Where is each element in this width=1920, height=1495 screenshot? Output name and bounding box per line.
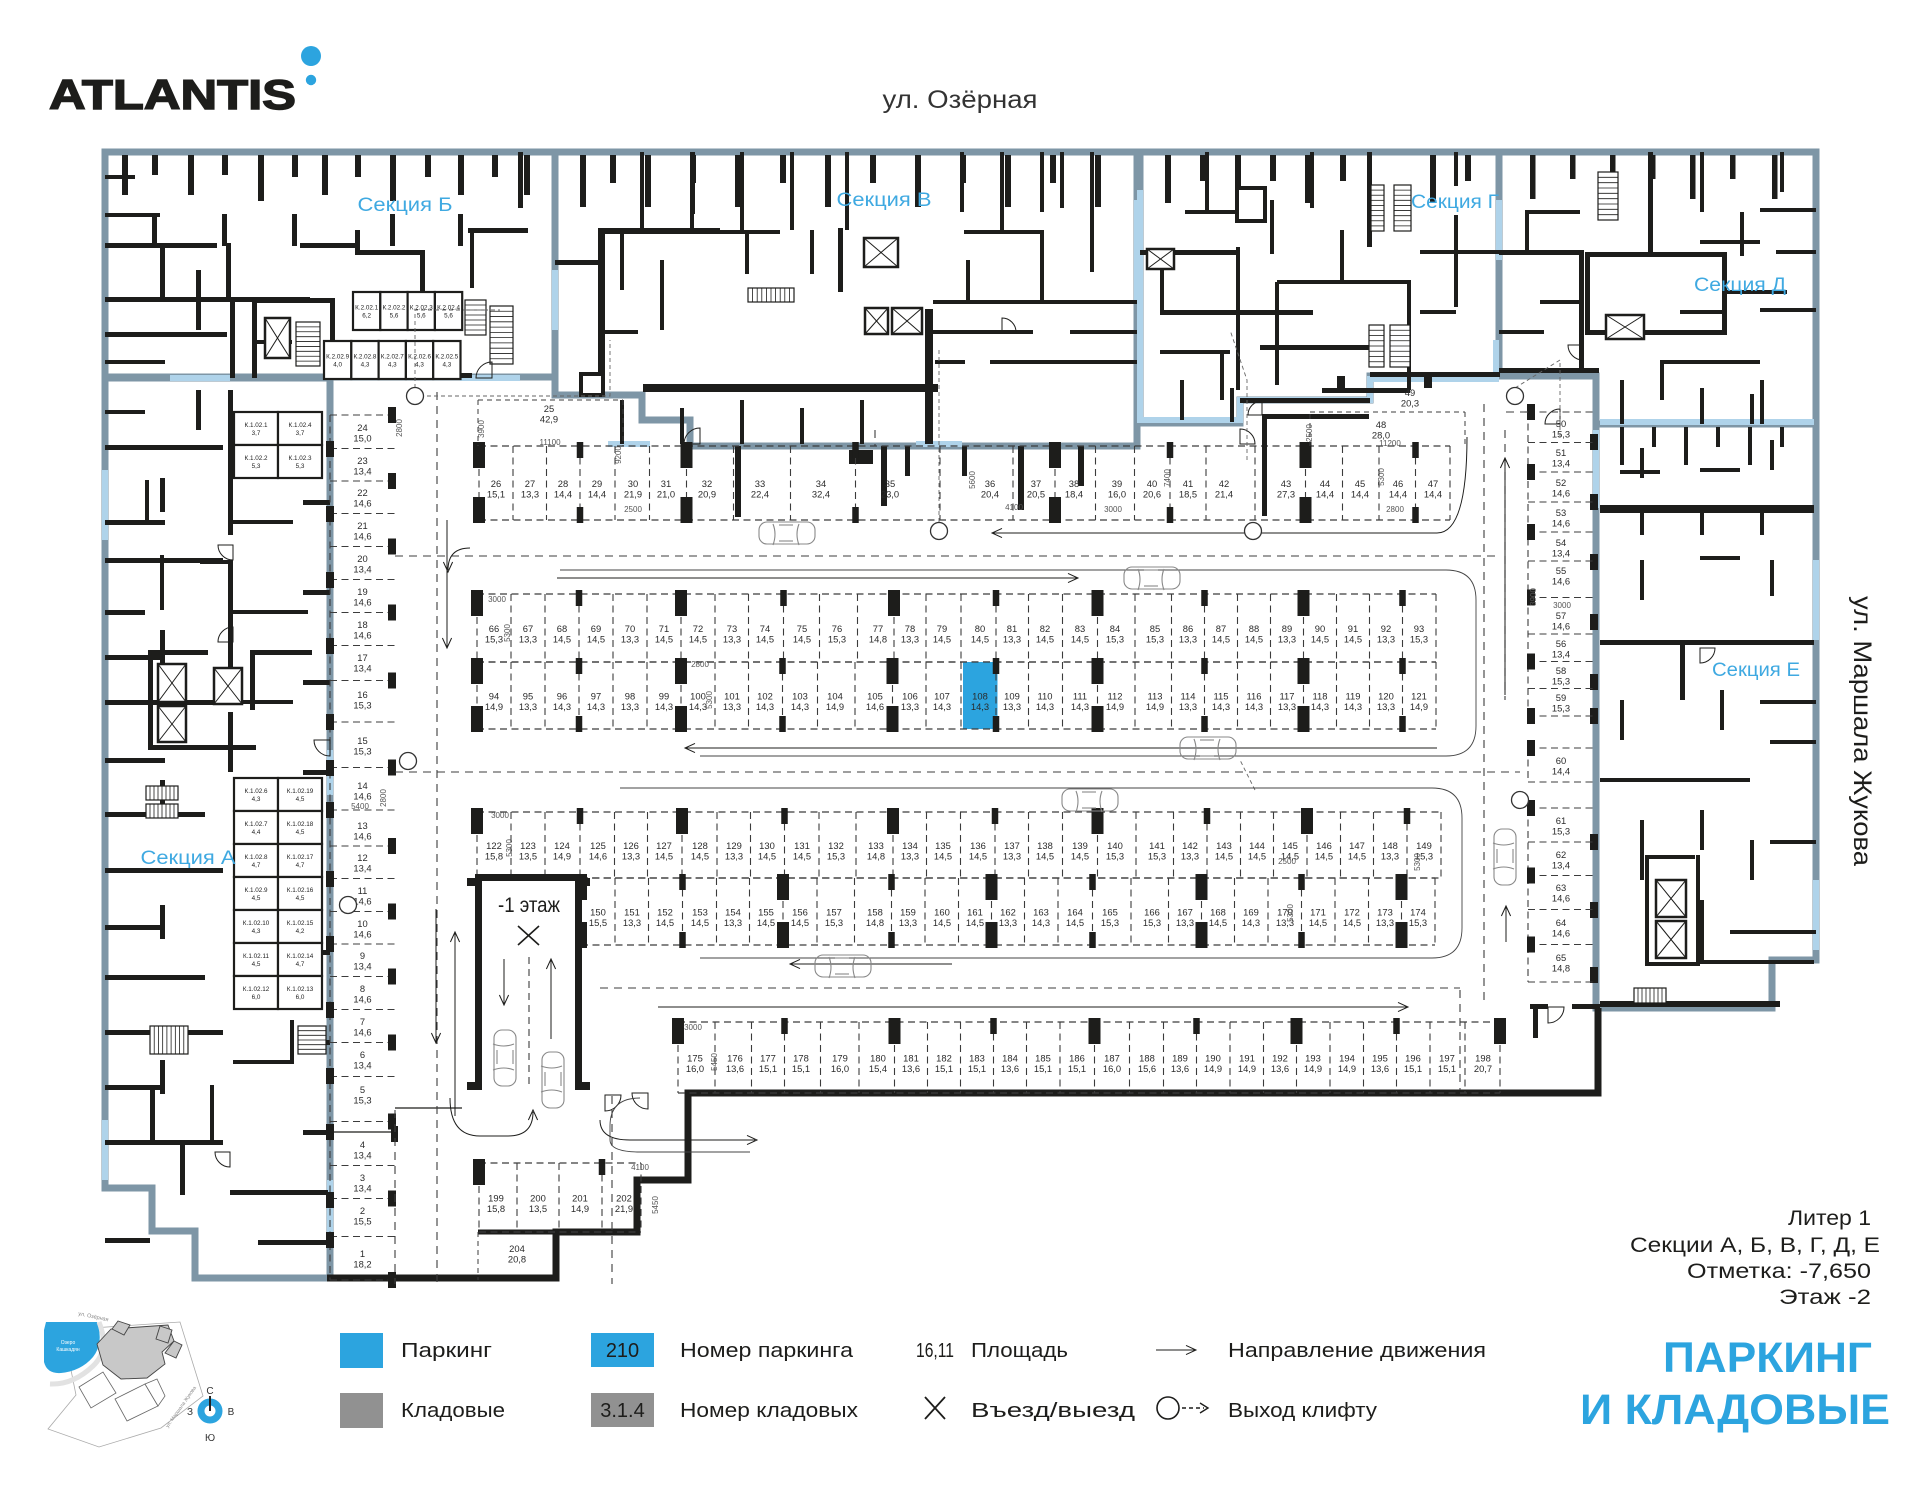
svg-text:15,3: 15,3 xyxy=(1552,703,1570,714)
svg-text:15,1: 15,1 xyxy=(935,1063,953,1074)
svg-text:81: 81 xyxy=(1007,623,1017,634)
svg-text:195: 195 xyxy=(1372,1053,1388,1064)
svg-text:Ю: Ю xyxy=(205,1433,215,1444)
svg-text:16,0: 16,0 xyxy=(1103,1063,1121,1074)
svg-text:181: 181 xyxy=(903,1053,919,1064)
svg-text:4,3: 4,3 xyxy=(442,362,451,369)
svg-text:168: 168 xyxy=(1210,907,1226,918)
svg-text:26: 26 xyxy=(491,478,501,489)
svg-text:5,6: 5,6 xyxy=(417,313,426,320)
svg-text:14,5: 14,5 xyxy=(691,851,709,862)
svg-text:5300: 5300 xyxy=(503,624,512,642)
svg-text:27: 27 xyxy=(525,478,535,489)
svg-text:16,0: 16,0 xyxy=(686,1063,704,1074)
svg-text:14,5: 14,5 xyxy=(969,851,987,862)
svg-text:116: 116 xyxy=(1247,691,1262,702)
svg-text:14,5: 14,5 xyxy=(1212,634,1230,645)
svg-text:14,3: 14,3 xyxy=(587,701,605,712)
svg-text:14,5: 14,5 xyxy=(1344,634,1362,645)
svg-text:15: 15 xyxy=(357,735,367,746)
svg-text:15,1: 15,1 xyxy=(759,1063,777,1074)
svg-text:14,5: 14,5 xyxy=(691,917,709,928)
svg-text:Секция А: Секция А xyxy=(141,848,236,869)
svg-text:91: 91 xyxy=(1348,623,1358,634)
svg-text:3: 3 xyxy=(360,1172,365,1183)
svg-text:2800: 2800 xyxy=(395,419,404,437)
svg-text:Кашкадян: Кашкадян xyxy=(56,1347,79,1353)
svg-text:4,3: 4,3 xyxy=(252,796,261,803)
svg-text:15,3: 15,3 xyxy=(1552,676,1570,687)
svg-text:166: 166 xyxy=(1144,907,1160,918)
svg-text:46: 46 xyxy=(1393,478,1403,489)
svg-text:165: 165 xyxy=(1102,907,1118,918)
svg-text:4,5: 4,5 xyxy=(296,829,305,836)
svg-text:121: 121 xyxy=(1411,691,1427,702)
svg-text:4,2: 4,2 xyxy=(296,928,305,935)
svg-text:18,5: 18,5 xyxy=(1179,489,1197,500)
svg-text:23: 23 xyxy=(357,455,367,466)
svg-text:3000: 3000 xyxy=(684,1023,702,1032)
svg-text:14,5: 14,5 xyxy=(971,634,989,645)
svg-text:К.2.02.7: К.2.02.7 xyxy=(381,354,404,361)
svg-text:19: 19 xyxy=(357,586,367,597)
svg-text:99: 99 xyxy=(659,691,669,702)
svg-text:14,5: 14,5 xyxy=(933,634,951,645)
svg-text:13,6: 13,6 xyxy=(726,1063,744,1074)
svg-text:13,6: 13,6 xyxy=(1271,1063,1289,1074)
svg-text:84: 84 xyxy=(1110,623,1120,634)
svg-text:15,3: 15,3 xyxy=(353,700,371,711)
svg-text:14,3: 14,3 xyxy=(971,701,989,712)
svg-text:13,3: 13,3 xyxy=(901,701,919,712)
svg-text:4,4: 4,4 xyxy=(252,829,261,836)
svg-text:14,6: 14,6 xyxy=(589,851,607,862)
svg-text:15,1: 15,1 xyxy=(1034,1063,1052,1074)
svg-text:127: 127 xyxy=(656,840,672,851)
svg-text:167: 167 xyxy=(1177,907,1193,918)
svg-text:155: 155 xyxy=(758,907,774,918)
svg-text:161: 161 xyxy=(967,907,983,918)
svg-text:13,3: 13,3 xyxy=(1176,917,1194,928)
svg-text:39: 39 xyxy=(1112,478,1122,489)
svg-text:Направление движения: Направление движения xyxy=(1228,1340,1486,1362)
svg-text:134: 134 xyxy=(902,840,918,851)
svg-text:14,5: 14,5 xyxy=(553,634,571,645)
svg-text:175: 175 xyxy=(687,1053,703,1064)
svg-text:К.1.02.10: К.1.02.10 xyxy=(243,920,270,927)
svg-text:13,4: 13,4 xyxy=(353,663,371,674)
svg-text:К.1.02.18: К.1.02.18 xyxy=(287,821,314,828)
svg-text:14,3: 14,3 xyxy=(553,701,571,712)
svg-text:78: 78 xyxy=(905,623,915,634)
svg-text:4,3: 4,3 xyxy=(361,362,370,369)
svg-text:120: 120 xyxy=(1378,691,1394,702)
svg-text:5300: 5300 xyxy=(1413,853,1422,871)
svg-text:3,7: 3,7 xyxy=(252,430,261,437)
svg-text:13,3: 13,3 xyxy=(1003,701,1021,712)
svg-text:70: 70 xyxy=(625,623,635,634)
svg-text:14,5: 14,5 xyxy=(1209,917,1227,928)
svg-text:15,3: 15,3 xyxy=(828,634,846,645)
svg-text:164: 164 xyxy=(1067,907,1083,918)
svg-text:Отметка: -7,650: Отметка: -7,650 xyxy=(1687,1260,1871,1283)
svg-text:35: 35 xyxy=(885,478,895,489)
svg-text:171: 171 xyxy=(1310,907,1326,918)
svg-text:136: 136 xyxy=(970,840,986,851)
svg-text:58: 58 xyxy=(1556,665,1566,676)
svg-text:14,3: 14,3 xyxy=(1036,701,1054,712)
svg-text:14,5: 14,5 xyxy=(1036,634,1054,645)
svg-text:К.1.02.16: К.1.02.16 xyxy=(287,887,314,894)
svg-text:173: 173 xyxy=(1377,907,1393,918)
svg-text:92: 92 xyxy=(1381,623,1391,634)
svg-text:20: 20 xyxy=(357,553,367,564)
svg-text:138: 138 xyxy=(1037,840,1053,851)
svg-text:53: 53 xyxy=(1556,507,1566,518)
svg-text:К.1.02.17: К.1.02.17 xyxy=(287,854,314,861)
svg-text:15,1: 15,1 xyxy=(1068,1063,1086,1074)
svg-text:9: 9 xyxy=(360,950,365,961)
svg-text:5: 5 xyxy=(360,1084,365,1095)
svg-text:21,4: 21,4 xyxy=(1215,489,1233,500)
svg-text:14,6: 14,6 xyxy=(353,831,371,842)
svg-text:4,7: 4,7 xyxy=(252,862,261,869)
svg-text:4,3: 4,3 xyxy=(252,928,261,935)
svg-text:33: 33 xyxy=(755,478,765,489)
svg-text:77: 77 xyxy=(873,623,883,634)
svg-text:5,3: 5,3 xyxy=(252,463,261,470)
svg-text:14,6: 14,6 xyxy=(353,1027,371,1038)
svg-text:47: 47 xyxy=(1428,478,1438,489)
svg-text:14,6: 14,6 xyxy=(353,531,371,542)
svg-text:151: 151 xyxy=(624,907,640,918)
svg-text:12: 12 xyxy=(357,852,367,863)
svg-text:Номер паркинга: Номер паркинга xyxy=(680,1340,854,1362)
svg-text:Въезд/выезд: Въезд/выезд xyxy=(971,1400,1135,1422)
svg-text:14,5: 14,5 xyxy=(756,634,774,645)
svg-text:89: 89 xyxy=(1282,623,1292,634)
svg-text:21,9: 21,9 xyxy=(624,489,642,500)
svg-text:14,5: 14,5 xyxy=(655,851,673,862)
svg-text:150: 150 xyxy=(590,907,606,918)
svg-text:18,4: 18,4 xyxy=(1065,489,1083,500)
svg-text:14,3: 14,3 xyxy=(1032,917,1050,928)
svg-text:160: 160 xyxy=(934,907,950,918)
svg-text:14,5: 14,5 xyxy=(1309,917,1327,928)
svg-text:14,6: 14,6 xyxy=(353,994,371,1005)
svg-text:185: 185 xyxy=(1035,1053,1051,1064)
svg-text:141: 141 xyxy=(1149,840,1165,851)
svg-text:2800: 2800 xyxy=(1386,505,1404,514)
svg-text:48: 48 xyxy=(1376,419,1386,430)
svg-text:186: 186 xyxy=(1069,1053,1085,1064)
svg-text:25: 25 xyxy=(544,403,554,414)
svg-text:169: 169 xyxy=(1243,907,1259,918)
svg-text:132: 132 xyxy=(828,840,844,851)
svg-text:42,9: 42,9 xyxy=(540,414,558,425)
svg-text:67: 67 xyxy=(523,623,533,634)
svg-text:15,1: 15,1 xyxy=(487,489,505,500)
svg-text:В: В xyxy=(228,1407,235,1418)
svg-text:3000: 3000 xyxy=(1104,505,1122,514)
svg-text:57: 57 xyxy=(1556,610,1566,621)
svg-text:Площадь: Площадь xyxy=(971,1340,1068,1362)
svg-text:80: 80 xyxy=(975,623,985,634)
svg-text:Секция Д: Секция Д xyxy=(1694,275,1786,296)
svg-text:14,6: 14,6 xyxy=(353,791,371,802)
svg-text:К.1.02.9: К.1.02.9 xyxy=(245,887,268,894)
svg-text:14,6: 14,6 xyxy=(1552,928,1570,939)
svg-text:14,5: 14,5 xyxy=(758,851,776,862)
svg-text:98: 98 xyxy=(625,691,635,702)
svg-text:4,5: 4,5 xyxy=(296,796,305,803)
svg-text:144: 144 xyxy=(1249,840,1265,851)
svg-text:105: 105 xyxy=(867,691,883,702)
svg-text:187: 187 xyxy=(1104,1053,1120,1064)
svg-text:126: 126 xyxy=(623,840,639,851)
svg-text:190: 190 xyxy=(1205,1053,1221,1064)
svg-text:109: 109 xyxy=(1004,691,1020,702)
svg-text:15,8: 15,8 xyxy=(487,1203,505,1214)
svg-text:4,7: 4,7 xyxy=(296,961,305,968)
svg-text:14,4: 14,4 xyxy=(1424,489,1442,500)
svg-text:3.1.4: 3.1.4 xyxy=(600,1400,644,1422)
svg-text:6,0: 6,0 xyxy=(252,994,261,1001)
svg-text:13,6: 13,6 xyxy=(1171,1063,1189,1074)
svg-text:200: 200 xyxy=(530,1193,546,1204)
svg-text:5300: 5300 xyxy=(1286,904,1295,922)
svg-text:13,3: 13,3 xyxy=(1278,701,1296,712)
svg-text:32,4: 32,4 xyxy=(812,489,830,500)
svg-text:18,2: 18,2 xyxy=(353,1259,371,1270)
svg-text:15,3: 15,3 xyxy=(353,746,371,757)
svg-text:5300: 5300 xyxy=(705,691,714,709)
svg-text:172: 172 xyxy=(1344,907,1360,918)
svg-text:13,3: 13,3 xyxy=(1179,701,1197,712)
svg-text:2800: 2800 xyxy=(691,660,709,669)
svg-text:177: 177 xyxy=(760,1053,776,1064)
svg-text:13,3: 13,3 xyxy=(724,917,742,928)
svg-text:К.1.02.7: К.1.02.7 xyxy=(245,821,268,828)
svg-text:73: 73 xyxy=(727,623,737,634)
svg-text:3,7: 3,7 xyxy=(296,430,305,437)
svg-text:4,5: 4,5 xyxy=(252,961,261,968)
svg-text:72: 72 xyxy=(693,623,703,634)
svg-text:1: 1 xyxy=(360,1248,365,1259)
svg-text:8: 8 xyxy=(360,983,365,994)
svg-text:3000: 3000 xyxy=(491,811,509,820)
svg-text:40: 40 xyxy=(1147,478,1157,489)
svg-text:14,8: 14,8 xyxy=(869,634,887,645)
svg-text:38: 38 xyxy=(1069,478,1079,489)
svg-text:191: 191 xyxy=(1239,1053,1255,1064)
svg-text:15,3: 15,3 xyxy=(827,851,845,862)
svg-text:15,1: 15,1 xyxy=(968,1063,986,1074)
svg-text:13,3: 13,3 xyxy=(1003,634,1021,645)
svg-text:14,5: 14,5 xyxy=(966,917,984,928)
svg-text:Секция Б: Секция Б xyxy=(358,195,453,216)
svg-text:5300: 5300 xyxy=(1377,468,1386,486)
svg-text:45: 45 xyxy=(1355,478,1365,489)
svg-text:147: 147 xyxy=(1349,840,1365,851)
svg-text:15,1: 15,1 xyxy=(792,1063,810,1074)
svg-text:24: 24 xyxy=(357,422,367,433)
svg-text:5,6: 5,6 xyxy=(390,313,399,320)
svg-text:14,6: 14,6 xyxy=(1552,893,1570,904)
svg-text:112: 112 xyxy=(1108,691,1123,702)
svg-text:76: 76 xyxy=(832,623,842,634)
svg-text:14,6: 14,6 xyxy=(1552,621,1570,632)
svg-text:13,4: 13,4 xyxy=(353,1183,371,1194)
svg-text:14,5: 14,5 xyxy=(1036,851,1054,862)
svg-text:6: 6 xyxy=(360,1049,365,1060)
svg-text:4,7: 4,7 xyxy=(296,862,305,869)
svg-text:13,3: 13,3 xyxy=(899,917,917,928)
svg-text:14,4: 14,4 xyxy=(1351,489,1369,500)
svg-text:14,5: 14,5 xyxy=(1071,851,1089,862)
svg-text:82: 82 xyxy=(1040,623,1050,634)
svg-text:14,5: 14,5 xyxy=(1248,851,1266,862)
svg-text:162: 162 xyxy=(1000,907,1016,918)
svg-text:14,6: 14,6 xyxy=(1552,576,1570,587)
svg-text:180: 180 xyxy=(870,1053,886,1064)
svg-text:176: 176 xyxy=(727,1053,743,1064)
svg-text:79: 79 xyxy=(937,623,947,634)
svg-text:14,4: 14,4 xyxy=(1316,489,1334,500)
svg-text:154: 154 xyxy=(725,907,741,918)
svg-text:14,3: 14,3 xyxy=(1071,701,1089,712)
svg-text:14,5: 14,5 xyxy=(655,634,673,645)
svg-text:4,5: 4,5 xyxy=(296,895,305,902)
svg-text:49: 49 xyxy=(1405,387,1415,398)
svg-text:14,9: 14,9 xyxy=(826,701,844,712)
svg-text:15,3: 15,3 xyxy=(353,1095,371,1106)
svg-text:13,3: 13,3 xyxy=(901,634,919,645)
svg-text:15,4: 15,4 xyxy=(869,1063,887,1074)
svg-text:6,2: 6,2 xyxy=(362,313,371,320)
svg-text:4,3: 4,3 xyxy=(388,362,397,369)
svg-text:13,3: 13,3 xyxy=(1377,701,1395,712)
svg-text:65: 65 xyxy=(1556,952,1566,963)
svg-text:14,3: 14,3 xyxy=(1242,917,1260,928)
svg-text:14,5: 14,5 xyxy=(757,917,775,928)
svg-text:115: 115 xyxy=(1214,691,1229,702)
svg-text:14,4: 14,4 xyxy=(1552,766,1570,777)
svg-text:14,5: 14,5 xyxy=(1315,851,1333,862)
svg-text:178: 178 xyxy=(793,1053,809,1064)
svg-text:37: 37 xyxy=(1031,478,1041,489)
svg-text:198: 198 xyxy=(1475,1053,1491,1064)
svg-text:21,0: 21,0 xyxy=(657,489,675,500)
svg-text:11200: 11200 xyxy=(1379,439,1401,448)
svg-text:15,1: 15,1 xyxy=(1404,1063,1422,1074)
svg-text:13,3: 13,3 xyxy=(1381,851,1399,862)
svg-text:14,8: 14,8 xyxy=(866,917,884,928)
svg-text:15,3: 15,3 xyxy=(1409,917,1427,928)
svg-text:13,4: 13,4 xyxy=(1552,548,1570,559)
svg-text:15,3: 15,3 xyxy=(1106,851,1124,862)
svg-text:13,3: 13,3 xyxy=(623,917,641,928)
svg-text:52: 52 xyxy=(1556,477,1566,488)
svg-text:13,3: 13,3 xyxy=(519,701,537,712)
svg-text:13,5: 13,5 xyxy=(529,1203,547,1214)
svg-text:69: 69 xyxy=(591,623,601,634)
svg-text:146: 146 xyxy=(1316,840,1332,851)
svg-text:14,4: 14,4 xyxy=(588,489,606,500)
svg-text:68: 68 xyxy=(557,623,567,634)
svg-text:135: 135 xyxy=(935,840,951,851)
svg-text:15,3: 15,3 xyxy=(1106,634,1124,645)
svg-text:137: 137 xyxy=(1004,840,1020,851)
svg-text:41: 41 xyxy=(1183,478,1193,489)
svg-text:14,9: 14,9 xyxy=(553,851,571,862)
svg-text:-1 этаж: -1 этаж xyxy=(498,894,560,917)
svg-text:199: 199 xyxy=(488,1193,504,1204)
svg-text:111: 111 xyxy=(1073,691,1087,702)
svg-text:123: 123 xyxy=(520,840,536,851)
svg-text:14,3: 14,3 xyxy=(791,701,809,712)
svg-text:К.1.02.3: К.1.02.3 xyxy=(289,455,312,462)
svg-text:21,9: 21,9 xyxy=(615,1203,633,1214)
svg-text:179: 179 xyxy=(832,1053,848,1064)
svg-text:13,3: 13,3 xyxy=(519,634,537,645)
svg-text:119: 119 xyxy=(1346,691,1361,702)
svg-text:14,9: 14,9 xyxy=(485,701,503,712)
svg-text:14: 14 xyxy=(357,780,367,791)
svg-text:31: 31 xyxy=(661,478,671,489)
svg-text:14,8: 14,8 xyxy=(1552,963,1570,974)
svg-text:75: 75 xyxy=(797,623,807,634)
svg-text:182: 182 xyxy=(936,1053,952,1064)
svg-text:148: 148 xyxy=(1382,840,1398,851)
svg-text:14,5: 14,5 xyxy=(1066,917,1084,928)
svg-text:13,4: 13,4 xyxy=(353,863,371,874)
svg-text:139: 139 xyxy=(1072,840,1088,851)
svg-text:14,8: 14,8 xyxy=(867,851,885,862)
svg-text:11: 11 xyxy=(358,885,368,896)
svg-text:140: 140 xyxy=(1107,840,1123,851)
svg-text:11100: 11100 xyxy=(539,438,561,447)
svg-text:15,8: 15,8 xyxy=(485,851,503,862)
svg-text:125: 125 xyxy=(590,840,606,851)
svg-text:90: 90 xyxy=(1315,623,1325,634)
svg-text:Секция В: Секция В xyxy=(837,190,932,211)
svg-text:13,4: 13,4 xyxy=(353,1060,371,1071)
svg-text:К.2.02.1: К.2.02.1 xyxy=(355,305,378,312)
svg-text:110: 110 xyxy=(1038,691,1053,702)
svg-text:К.1.02.4: К.1.02.4 xyxy=(289,422,312,429)
svg-text:К.1.02.8: К.1.02.8 xyxy=(245,854,268,861)
svg-text:106: 106 xyxy=(902,691,918,702)
svg-text:14,3: 14,3 xyxy=(933,701,951,712)
svg-text:14,9: 14,9 xyxy=(1106,701,1124,712)
svg-text:14,5: 14,5 xyxy=(1343,917,1361,928)
svg-text:66: 66 xyxy=(489,623,499,634)
svg-text:К.2.02.9: К.2.02.9 xyxy=(326,354,349,361)
svg-text:Литер 1: Литер 1 xyxy=(1788,1207,1871,1230)
svg-text:9200: 9200 xyxy=(614,446,623,464)
svg-text:15,6: 15,6 xyxy=(1138,1063,1156,1074)
svg-text:5300: 5300 xyxy=(505,839,514,857)
svg-text:К.1.02.13: К.1.02.13 xyxy=(287,986,314,993)
svg-text:14,9: 14,9 xyxy=(1304,1063,1322,1074)
svg-text:18: 18 xyxy=(357,619,367,630)
svg-text:ПАРКИНГ: ПАРКИНГ xyxy=(1663,1334,1872,1382)
svg-text:13,3: 13,3 xyxy=(1377,634,1395,645)
svg-text:62: 62 xyxy=(1556,849,1566,860)
svg-text:96: 96 xyxy=(557,691,567,702)
svg-text:32: 32 xyxy=(702,478,712,489)
